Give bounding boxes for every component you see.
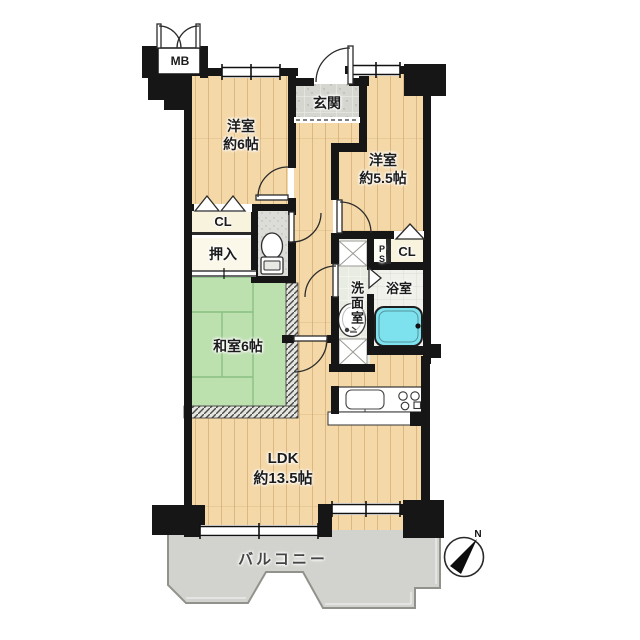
- sliding-door-strip-horizontal: [184, 406, 298, 418]
- kitchen-counter-icon: [328, 387, 424, 425]
- balcony-label: バルコニー: [218, 550, 348, 570]
- entrance-step: [294, 117, 360, 123]
- balcony-door-right: [332, 501, 400, 517]
- ldk-name: LDK: [218, 449, 348, 469]
- closet-1-label: CL: [194, 214, 252, 231]
- western-room-2-size: 約5.5帖: [338, 169, 428, 187]
- western-room-1-label: 洋室 約6帖: [198, 117, 284, 153]
- compass-north-label: N: [470, 528, 486, 541]
- entrance-door: [316, 46, 353, 84]
- window-room2: [352, 62, 400, 78]
- bathroom-label: 浴室: [375, 281, 423, 298]
- closet-2-label: CL: [390, 244, 424, 261]
- pipe-space-label: PS: [372, 241, 387, 267]
- meter-box-label: MB: [160, 54, 200, 70]
- western-room-1-size: 約6帖: [198, 135, 284, 153]
- toilet-icon: [261, 233, 283, 274]
- bathtub-icon: [375, 307, 422, 346]
- balcony-door-left: [200, 523, 318, 539]
- mb-double-door: [157, 24, 200, 48]
- ldk-label: LDK 約13.5帖: [218, 449, 348, 488]
- counter-front: [328, 412, 412, 425]
- western-room-2-label: 洋室 約5.5帖: [338, 151, 428, 187]
- ldk-size: 約13.5帖: [218, 469, 348, 489]
- japanese-room-label: 和室6帖: [188, 337, 288, 355]
- entrance-label: 玄関: [296, 94, 358, 112]
- washroom-label: 洗面室: [342, 264, 364, 342]
- oshiire-label: 押入: [194, 245, 252, 263]
- floor-plan: MB 洋室 約6帖 玄関 洋室 約5.5帖 CL 押入 PS CL 洗面室 浴室…: [0, 0, 640, 640]
- window-room1: [222, 64, 280, 80]
- western-room-1-name: 洋室: [198, 117, 284, 135]
- kitchen-sink-icon: [346, 390, 384, 409]
- compass-icon: [445, 538, 484, 577]
- western-room-2-name: 洋室: [338, 151, 428, 169]
